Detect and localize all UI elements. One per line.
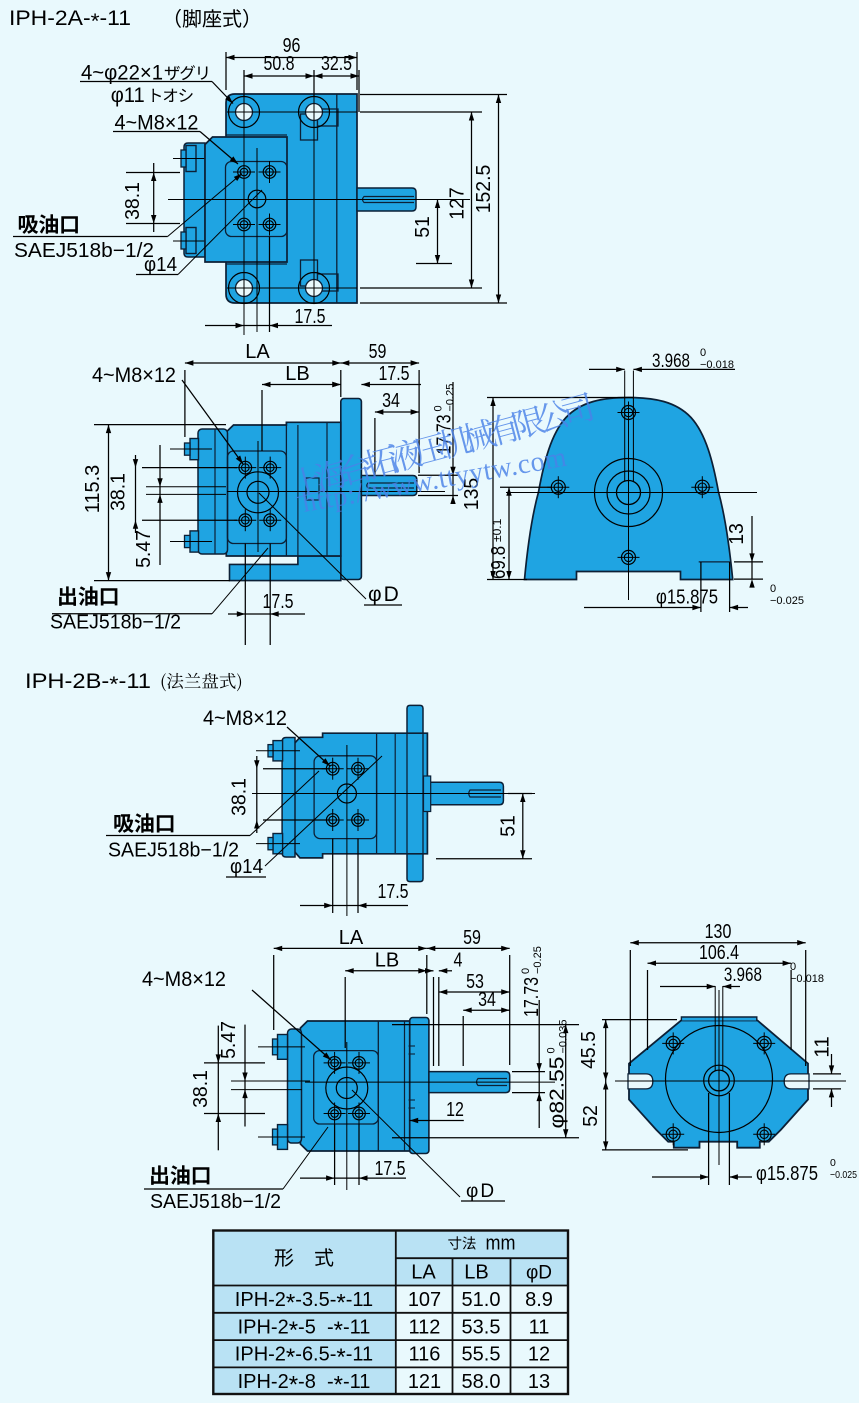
svg-text:12: 12	[528, 1344, 550, 1366]
svg-text:17.5: 17.5	[378, 363, 409, 385]
svg-text:−0.018: −0.018	[700, 359, 734, 371]
svg-text:8.9: 8.9	[525, 1289, 553, 1311]
svg-text:45.5: 45.5	[578, 1031, 600, 1069]
svg-text:−0.035: −0.035	[558, 1020, 570, 1054]
svg-text:4~M8×12: 4~M8×12	[142, 967, 226, 991]
svg-text:SAEJ518b−1/2: SAEJ518b−1/2	[108, 840, 239, 862]
svg-text:φ82.55: φ82.55	[547, 1057, 569, 1129]
svg-text:112: 112	[409, 1316, 441, 1338]
svg-text:−0.025: −0.025	[770, 595, 804, 607]
svg-text:58.0: 58.0	[462, 1371, 501, 1393]
svg-text:±0.1: ±0.1	[490, 518, 504, 542]
svg-text:0: 0	[700, 347, 706, 359]
svg-text:116: 116	[409, 1344, 441, 1366]
svg-text:34: 34	[382, 390, 400, 412]
svg-text:φD: φD	[368, 583, 401, 606]
svg-text:φ11: φ11	[111, 83, 145, 107]
svg-text:0: 0	[433, 405, 445, 411]
svg-text:38.1: 38.1	[122, 182, 144, 220]
svg-text:51: 51	[412, 216, 434, 238]
svg-text:115.3: 115.3	[82, 465, 104, 514]
svg-text:−0.25: −0.25	[532, 946, 544, 974]
svg-text:φD: φD	[466, 1181, 496, 1202]
svg-text:3.968: 3.968	[652, 351, 690, 372]
svg-text:SAEJ518b−1/2: SAEJ518b−1/2	[14, 240, 154, 262]
svg-text:17.73: 17.73	[521, 977, 543, 1017]
svg-text:IPH-2B-*-11: IPH-2B-*-11	[25, 670, 151, 696]
svg-text:5.47: 5.47	[218, 1021, 240, 1059]
svg-text:φD: φD	[526, 1263, 552, 1284]
svg-text:5.47: 5.47	[133, 530, 155, 568]
svg-text:55.5: 55.5	[462, 1344, 501, 1366]
svg-text:127: 127	[447, 187, 469, 219]
svg-text:17.5: 17.5	[294, 306, 325, 328]
svg-text:11: 11	[529, 1316, 550, 1338]
svg-text:3.968: 3.968	[724, 965, 762, 986]
svg-text:52: 52	[580, 1105, 602, 1127]
svg-text:107: 107	[408, 1289, 441, 1311]
svg-text:LA: LA	[245, 341, 270, 363]
svg-text:38.1: 38.1	[108, 473, 130, 511]
svg-text:LB: LB	[285, 363, 309, 385]
svg-text:51.0: 51.0	[462, 1289, 501, 1311]
svg-text:4~M8×12: 4~M8×12	[203, 706, 287, 730]
svg-text:0: 0	[830, 1157, 836, 1169]
svg-text:LB: LB	[375, 950, 399, 972]
svg-text:0: 0	[520, 968, 532, 974]
svg-text:130: 130	[705, 921, 732, 943]
svg-text:−0.018: −0.018	[790, 973, 824, 985]
svg-text:SAEJ518b−1/2: SAEJ518b−1/2	[150, 1191, 281, 1213]
svg-text:LA: LA	[339, 927, 364, 949]
svg-text:69.8: 69.8	[488, 546, 510, 579]
svg-text:0: 0	[790, 961, 796, 973]
svg-text:17.5: 17.5	[262, 591, 293, 613]
svg-text:38.1: 38.1	[229, 778, 251, 816]
svg-text:φ15.875: φ15.875	[656, 587, 718, 609]
svg-text:φ14: φ14	[230, 856, 263, 878]
svg-text:LA: LA	[411, 1262, 436, 1284]
svg-text:11: 11	[812, 1036, 834, 1058]
svg-text:50.8: 50.8	[263, 53, 294, 75]
svg-text:17.5: 17.5	[374, 1158, 405, 1180]
svg-text:SAEJ518b−1/2: SAEJ518b−1/2	[50, 612, 181, 634]
svg-text:mm: mm	[486, 1233, 516, 1255]
svg-text:φ14: φ14	[144, 254, 177, 276]
svg-text:59: 59	[369, 341, 387, 363]
svg-text:0: 0	[770, 583, 776, 595]
svg-text:φ15.875: φ15.875	[756, 1163, 818, 1185]
svg-text:0: 0	[546, 1047, 558, 1053]
svg-text:IPH-2A-*-11: IPH-2A-*-11	[9, 7, 131, 33]
svg-text:12: 12	[446, 1099, 464, 1121]
svg-text:152.5: 152.5	[473, 165, 495, 214]
svg-text:59: 59	[463, 927, 481, 949]
svg-text:38.1: 38.1	[190, 1070, 212, 1108]
svg-text:−0.25: −0.25	[445, 384, 457, 412]
svg-text:121: 121	[408, 1371, 441, 1393]
svg-text:34: 34	[478, 989, 496, 1011]
svg-text:17.5: 17.5	[377, 881, 408, 903]
svg-text:LB: LB	[464, 1262, 488, 1284]
svg-text:13: 13	[528, 1371, 550, 1393]
svg-text:32.5: 32.5	[321, 53, 352, 75]
svg-text:−0.025: −0.025	[830, 1169, 857, 1181]
svg-text:106.4: 106.4	[699, 942, 739, 964]
svg-text:4~M8×12: 4~M8×12	[92, 363, 176, 387]
svg-text:4: 4	[454, 950, 463, 972]
svg-text:51: 51	[498, 815, 520, 837]
svg-text:13: 13	[726, 523, 748, 545]
svg-text:53.5: 53.5	[462, 1316, 501, 1338]
